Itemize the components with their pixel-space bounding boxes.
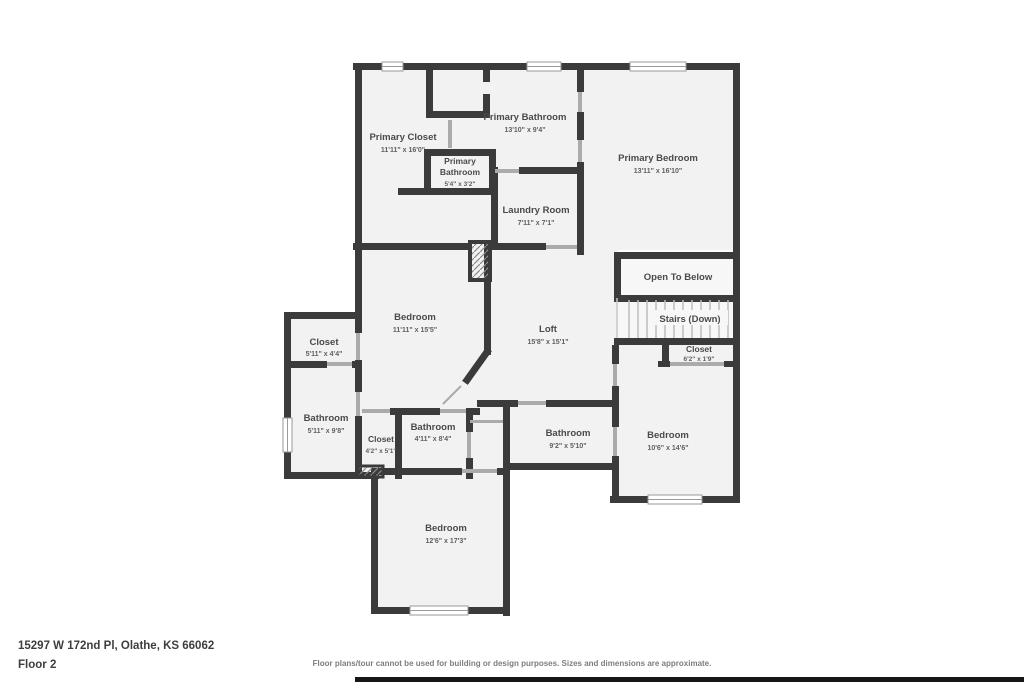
wall-segment bbox=[426, 111, 490, 118]
wall-segment bbox=[612, 345, 619, 364]
wall-segment bbox=[466, 458, 473, 479]
room-name-label: Closet bbox=[368, 434, 394, 444]
room-name-label: Bathroom bbox=[411, 422, 456, 433]
door-line bbox=[440, 409, 466, 413]
room-dims-label: 12'6" x 17'3" bbox=[425, 538, 466, 545]
room-name-label: Primary Bathroom bbox=[484, 112, 567, 123]
room-name-label: Primary Bedroom bbox=[618, 153, 698, 164]
room-dims-label: 5'11" x 9'8" bbox=[308, 428, 345, 435]
wall-segment bbox=[614, 338, 740, 345]
room-dims-label: 11'11" x 16'0" bbox=[381, 147, 425, 154]
wall-segment bbox=[352, 361, 362, 368]
wall-segment bbox=[612, 456, 619, 502]
door-line bbox=[518, 401, 546, 405]
room-dims-label: 5'4" x 3'2" bbox=[445, 181, 476, 188]
room-dims-label: 6'2" x 1'9" bbox=[684, 356, 715, 363]
wall-segment bbox=[426, 70, 433, 118]
door-line bbox=[362, 409, 390, 413]
room-name-label: Bathroom bbox=[546, 428, 591, 439]
wall-segment bbox=[577, 112, 584, 140]
room-dims-label: 9'2" x 5'10" bbox=[549, 443, 586, 450]
door-line bbox=[448, 120, 452, 148]
wall-segment bbox=[577, 70, 584, 92]
room-dims-label: 7'11" x 7'1" bbox=[518, 220, 555, 227]
wall-segment bbox=[491, 167, 498, 250]
wall-segment bbox=[658, 361, 670, 367]
room-name-label: Loft bbox=[539, 324, 558, 335]
room-name-label: Bedroom bbox=[394, 312, 436, 323]
door-line bbox=[546, 245, 577, 249]
wall-segment bbox=[577, 162, 584, 255]
door-line bbox=[613, 364, 617, 386]
room-name-label: Laundry Room bbox=[502, 205, 569, 216]
bottom-bar bbox=[355, 677, 1024, 682]
property-address: 15297 W 172nd Pl, Olathe, KS 66062 bbox=[18, 640, 214, 652]
wall-segment bbox=[353, 243, 472, 250]
room-closet-left: Closet 5'11" x 4'4" bbox=[306, 337, 343, 358]
chimney-chase bbox=[358, 466, 383, 477]
door-line bbox=[470, 420, 503, 423]
door-line bbox=[578, 140, 582, 162]
door-line bbox=[356, 392, 360, 416]
room-name-label: Primary bbox=[444, 156, 476, 166]
room-dims-label: 13'10" x 9'4" bbox=[504, 127, 545, 134]
wall-segment bbox=[733, 63, 740, 503]
room-primary-bathroom-small: Primary Bathroom 5'4" x 3'2" bbox=[440, 156, 481, 188]
room-name-label: Bedroom bbox=[425, 523, 467, 534]
door-line bbox=[356, 333, 360, 360]
room-name-label: Bathroom bbox=[304, 413, 349, 424]
room-dims-label: 13'11" x 16'10" bbox=[634, 168, 683, 175]
chimney-chase bbox=[470, 242, 490, 280]
door-line bbox=[327, 362, 352, 366]
room-dims-label: 10'6" x 14'6" bbox=[647, 445, 688, 452]
room-dims-label: 4'11" x 8'4" bbox=[415, 436, 452, 443]
room-dims-label: 5'11" x 4'4" bbox=[306, 351, 343, 358]
wall-segment bbox=[724, 361, 738, 367]
room-dims-label: 4'2" x 5'1" bbox=[366, 448, 397, 455]
wall-segment bbox=[483, 70, 490, 82]
wall-segment bbox=[614, 252, 740, 259]
floor-plan-svg: Primary Closet 11'11" x 16'0" Primary Ba… bbox=[0, 0, 1024, 682]
wall-segment bbox=[497, 468, 510, 475]
room-closet-hall: Closet 6'2" x 1'9" bbox=[684, 344, 715, 363]
wall-segment bbox=[371, 468, 462, 475]
wall-segment bbox=[284, 312, 362, 319]
wall-segment bbox=[395, 408, 402, 479]
wall-segment bbox=[284, 361, 327, 368]
door-line bbox=[462, 469, 497, 473]
wall-segment bbox=[519, 167, 583, 174]
room-dims-label: 11'11" x 15'5" bbox=[393, 327, 437, 334]
room-name-label: Stairs (Down) bbox=[659, 314, 720, 325]
room-name-label: Closet bbox=[309, 337, 339, 348]
room-name-label: Primary Closet bbox=[369, 132, 437, 143]
floor-plan-page: Primary Closet 11'11" x 16'0" Primary Ba… bbox=[0, 0, 1024, 682]
door-line bbox=[613, 427, 617, 456]
door-line bbox=[578, 92, 582, 112]
disclaimer-text: Floor plans/tour cannot be used for buil… bbox=[0, 659, 1024, 668]
wall-segment bbox=[614, 295, 740, 302]
room-stairs: Stairs (Down) bbox=[659, 314, 720, 325]
wall-segment bbox=[477, 400, 518, 407]
wall-segment bbox=[424, 149, 496, 156]
room-name-label: Bathroom bbox=[440, 167, 481, 177]
room-dims-label: 15'8" x 15'1" bbox=[527, 339, 568, 346]
wall-segment bbox=[355, 63, 362, 333]
wall-segment bbox=[503, 400, 510, 616]
wall-segment bbox=[371, 468, 378, 614]
door-line bbox=[467, 432, 471, 458]
wall-segment bbox=[284, 312, 291, 479]
wall-segment bbox=[614, 252, 621, 302]
wall-segment bbox=[546, 400, 619, 407]
room-bathroom-mid: Bathroom 4'11" x 8'4" bbox=[411, 422, 456, 443]
door-line bbox=[495, 169, 519, 173]
wall-segment bbox=[490, 243, 546, 250]
wall-segment bbox=[398, 188, 496, 195]
room-open-to-below: Open To Below bbox=[644, 272, 713, 283]
room-name-label: Bedroom bbox=[647, 430, 689, 441]
room-name-label: Closet bbox=[686, 344, 712, 354]
room-name-label: Open To Below bbox=[644, 272, 713, 283]
wall-segment bbox=[503, 463, 619, 470]
